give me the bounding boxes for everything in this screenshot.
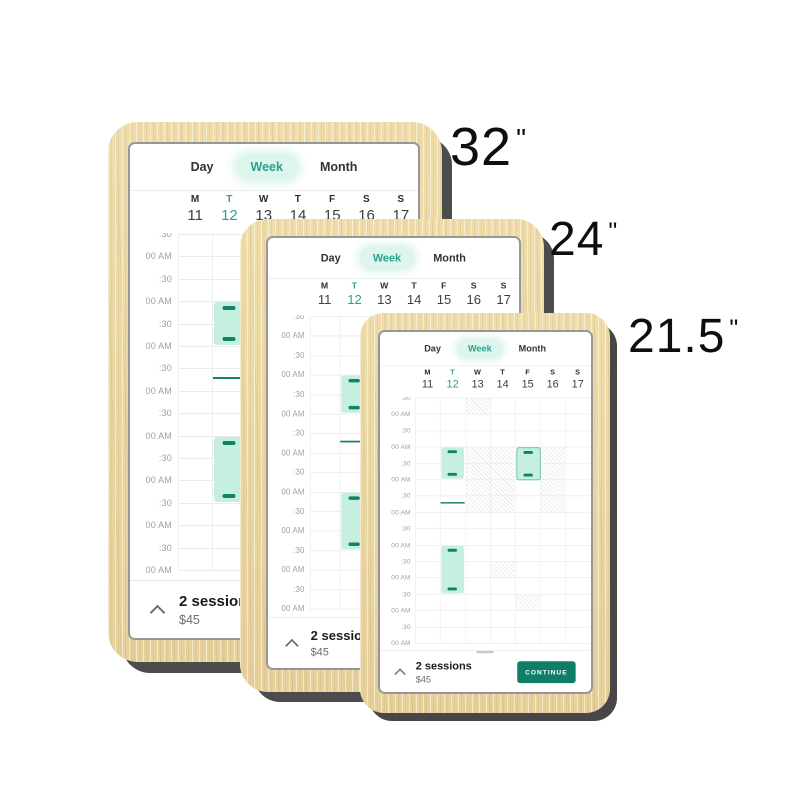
day-letter: T xyxy=(212,194,246,205)
time-label: :30 xyxy=(380,492,411,499)
unavailable-cell xyxy=(491,562,515,578)
time-label: :30 xyxy=(268,468,305,477)
size-label-24: 24" xyxy=(549,216,617,264)
grid-line xyxy=(415,627,590,628)
time-label: 00 AM xyxy=(268,448,305,457)
tab-day[interactable]: Day xyxy=(423,339,443,358)
day-letter: F xyxy=(429,282,459,292)
time-label: 00 AM xyxy=(130,251,172,261)
grid-line xyxy=(465,397,466,644)
time-label: 00 AM xyxy=(130,475,172,485)
screen-bezel-21-5: DayWeekMonth M11T12W13T14F15S16S17 :3000… xyxy=(378,330,593,694)
day-column-m-11[interactable]: M11 xyxy=(415,366,440,397)
grid-line xyxy=(415,594,590,595)
day-date: 14 xyxy=(399,293,429,308)
time-label: :30 xyxy=(268,390,305,399)
grid-line xyxy=(310,315,311,609)
grid-line xyxy=(415,529,590,530)
day-column-s-16[interactable]: S16 xyxy=(540,366,565,397)
day-column-t-12[interactable]: T12 xyxy=(212,191,246,233)
session-drag-handle-icon[interactable] xyxy=(524,451,533,454)
chevron-up-icon[interactable] xyxy=(285,638,299,652)
session-drag-handle-icon[interactable] xyxy=(349,379,360,382)
time-label: 00 AM xyxy=(380,639,411,646)
week-day-header: M11T12W13T14F15S16S17 xyxy=(415,366,590,397)
day-date: 11 xyxy=(178,207,212,224)
day-date: 12 xyxy=(212,207,246,224)
time-label: 00 AM xyxy=(130,386,172,396)
chevron-up-icon[interactable] xyxy=(394,668,405,679)
tab-week[interactable]: Week xyxy=(236,154,298,180)
chevron-up-icon[interactable] xyxy=(150,604,166,620)
day-date: 16 xyxy=(459,293,489,308)
grid-line xyxy=(415,414,590,415)
grid-line xyxy=(490,397,491,644)
day-letter: F xyxy=(315,194,349,205)
session-drag-handle-icon[interactable] xyxy=(349,542,360,545)
day-column-w-13[interactable]: W13 xyxy=(369,279,399,316)
time-label: :30 xyxy=(268,315,305,320)
session-block[interactable] xyxy=(441,546,464,594)
session-drag-handle-icon[interactable] xyxy=(448,549,457,552)
session-drag-handle-icon[interactable] xyxy=(448,450,457,453)
session-drag-handle-icon[interactable] xyxy=(448,587,457,590)
time-label: :30 xyxy=(130,274,172,284)
time-label: 00 AM xyxy=(130,296,172,306)
day-column-t-12[interactable]: T12 xyxy=(340,279,370,316)
day-column-t-14[interactable]: T14 xyxy=(399,279,429,316)
time-label: :30 xyxy=(130,363,172,373)
grid-line xyxy=(212,233,213,571)
day-column-s-16[interactable]: S16 xyxy=(459,279,489,316)
time-label: 00 AM xyxy=(380,541,411,548)
sessions-price: $45 xyxy=(416,674,517,684)
time-label: :30 xyxy=(380,590,411,597)
day-letter: T xyxy=(340,282,370,292)
time-label: 00 AM xyxy=(268,487,305,496)
day-date: 17 xyxy=(565,378,590,390)
day-letter: S xyxy=(459,282,489,292)
time-label: 00 AM xyxy=(380,574,411,581)
day-letter: M xyxy=(415,369,440,377)
time-label: 00 AM xyxy=(268,565,305,574)
inch-mark: " xyxy=(608,218,617,246)
session-drag-handle-icon[interactable] xyxy=(223,306,236,310)
time-label: :30 xyxy=(380,459,411,466)
time-label: :30 xyxy=(380,397,411,401)
schedule-grid[interactable]: :3000 AM:3000 AM:3000 AM:3000 AM:3000 AM… xyxy=(380,397,590,651)
unavailable-cell xyxy=(541,447,565,512)
time-label: :30 xyxy=(268,585,305,594)
grid-line xyxy=(415,643,590,644)
day-date: 15 xyxy=(515,378,540,390)
session-drag-handle-icon[interactable] xyxy=(223,494,236,498)
time-label: 00 AM xyxy=(380,607,411,614)
time-label: :30 xyxy=(380,427,411,434)
grid-line xyxy=(415,610,590,611)
time-label: 00 AM xyxy=(130,565,172,575)
time-label: :30 xyxy=(380,623,411,630)
inch-mark: " xyxy=(729,315,738,343)
day-letter: S xyxy=(540,369,565,377)
day-date: 11 xyxy=(415,378,440,390)
day-column-m-11[interactable]: M11 xyxy=(310,279,340,316)
time-label: 00 AM xyxy=(380,509,411,516)
grid-line xyxy=(415,430,590,431)
tab-day[interactable]: Day xyxy=(189,154,216,180)
day-letter: S xyxy=(349,194,383,205)
time-label: 00 AM xyxy=(268,604,305,613)
session-drag-handle-icon[interactable] xyxy=(349,406,360,409)
session-drag-handle-icon[interactable] xyxy=(448,473,457,476)
day-date: 13 xyxy=(465,378,490,390)
time-label: 00 AM xyxy=(130,431,172,441)
day-letter: T xyxy=(281,194,315,205)
day-letter: W xyxy=(247,194,281,205)
day-letter: S xyxy=(384,194,418,205)
week-day-header: M11T12W13T14F15S16S17 xyxy=(310,279,519,316)
grid-line xyxy=(415,398,590,399)
tab-month[interactable]: Month xyxy=(517,339,547,358)
booking-summary: 2 sessions $45 xyxy=(416,660,517,685)
sessions-count: 2 sessions xyxy=(416,660,517,672)
tab-month[interactable]: Month xyxy=(318,154,359,180)
tab-week[interactable]: Week xyxy=(457,339,503,358)
grid-line xyxy=(565,397,566,644)
day-letter: F xyxy=(515,369,540,377)
time-label: :30 xyxy=(380,558,411,565)
day-letter: T xyxy=(399,282,429,292)
day-letter: S xyxy=(565,369,590,377)
booking-summary-bar: 2 sessions $45 CONTINUE xyxy=(380,651,590,693)
view-tabs: DayWeekMonth xyxy=(380,332,590,366)
grid-line xyxy=(340,315,341,609)
time-label: :30 xyxy=(130,543,172,553)
day-column-m-11[interactable]: M11 xyxy=(178,191,212,233)
view-tabs: DayWeekMonth xyxy=(130,144,418,191)
size-label-21-5: 21.5" xyxy=(628,313,738,361)
unavailable-cell xyxy=(466,398,490,414)
inch-mark: " xyxy=(516,123,526,154)
day-date: 12 xyxy=(340,293,370,308)
grid-line xyxy=(415,512,590,513)
grid-line xyxy=(440,397,441,644)
booking-app-screen-21-5: DayWeekMonth M11T12W13T14F15S16S17 :3000… xyxy=(380,332,590,693)
session-drag-handle-icon[interactable] xyxy=(524,474,533,477)
session-block[interactable] xyxy=(516,447,540,480)
day-letter: M xyxy=(310,282,340,292)
tablet-frame-21-5: DayWeekMonth M11T12W13T14F15S16S17 :3000… xyxy=(360,313,610,713)
view-tabs: DayWeekMonth xyxy=(268,238,519,279)
grid-line xyxy=(540,397,541,644)
continue-button[interactable]: CONTINUE xyxy=(517,661,576,683)
time-label: :30 xyxy=(380,525,411,532)
time-label: 00 AM xyxy=(380,476,411,483)
tab-week[interactable]: Week xyxy=(360,247,414,270)
time-label: 00 AM xyxy=(380,443,411,450)
day-date: 11 xyxy=(310,293,340,308)
time-label: :30 xyxy=(268,507,305,516)
day-date: 16 xyxy=(540,378,565,390)
day-letter: W xyxy=(465,369,490,377)
day-column-f-15[interactable]: F15 xyxy=(429,279,459,316)
session-drag-handle-icon[interactable] xyxy=(223,337,236,341)
scroll-indicator xyxy=(476,651,494,653)
time-label: :30 xyxy=(130,498,172,508)
session-drag-handle-icon[interactable] xyxy=(223,441,236,445)
time-label: :30 xyxy=(268,351,305,360)
time-label: 00 AM xyxy=(268,409,305,418)
tab-month[interactable]: Month xyxy=(432,247,468,270)
time-label: 00 AM xyxy=(380,410,411,417)
session-block[interactable] xyxy=(441,447,464,478)
time-label: 00 AM xyxy=(130,520,172,530)
session-drag-handle-icon[interactable] xyxy=(349,496,360,499)
availability-indicator xyxy=(441,502,465,503)
grid-line xyxy=(415,397,416,644)
grid-line xyxy=(178,233,179,571)
day-letter: W xyxy=(369,282,399,292)
day-date: 14 xyxy=(490,378,515,390)
time-label: :30 xyxy=(268,429,305,438)
day-letter: S xyxy=(489,282,519,292)
day-column-t-12[interactable]: T12 xyxy=(440,366,465,397)
time-label: :30 xyxy=(268,546,305,555)
day-date: 12 xyxy=(440,378,465,390)
day-date: 15 xyxy=(429,293,459,308)
day-date: 13 xyxy=(369,293,399,308)
day-letter: T xyxy=(490,369,515,377)
day-letter: T xyxy=(440,369,465,377)
day-letter: M xyxy=(178,194,212,205)
time-label: :30 xyxy=(130,453,172,463)
time-label: 00 AM xyxy=(268,331,305,340)
size-label-32: 32" xyxy=(450,120,526,174)
product-showcase: DayWeekMonth M11T12W13T14F15S16S17 :3000… xyxy=(0,0,800,800)
time-label: 00 AM xyxy=(268,370,305,379)
day-column-w-13[interactable]: W13 xyxy=(465,366,490,397)
unavailable-cell xyxy=(516,595,540,611)
day-column-s-17[interactable]: S17 xyxy=(489,279,519,316)
day-column-f-15[interactable]: F15 xyxy=(515,366,540,397)
time-label: :30 xyxy=(130,319,172,329)
day-date: 17 xyxy=(489,293,519,308)
time-label: :30 xyxy=(130,233,172,239)
tab-day[interactable]: Day xyxy=(319,247,342,270)
time-label: :30 xyxy=(130,408,172,418)
unavailable-cell xyxy=(466,447,515,512)
day-column-s-17[interactable]: S17 xyxy=(565,366,590,397)
time-label: 00 AM xyxy=(268,526,305,535)
time-label: 00 AM xyxy=(130,341,172,351)
day-column-t-14[interactable]: T14 xyxy=(490,366,515,397)
